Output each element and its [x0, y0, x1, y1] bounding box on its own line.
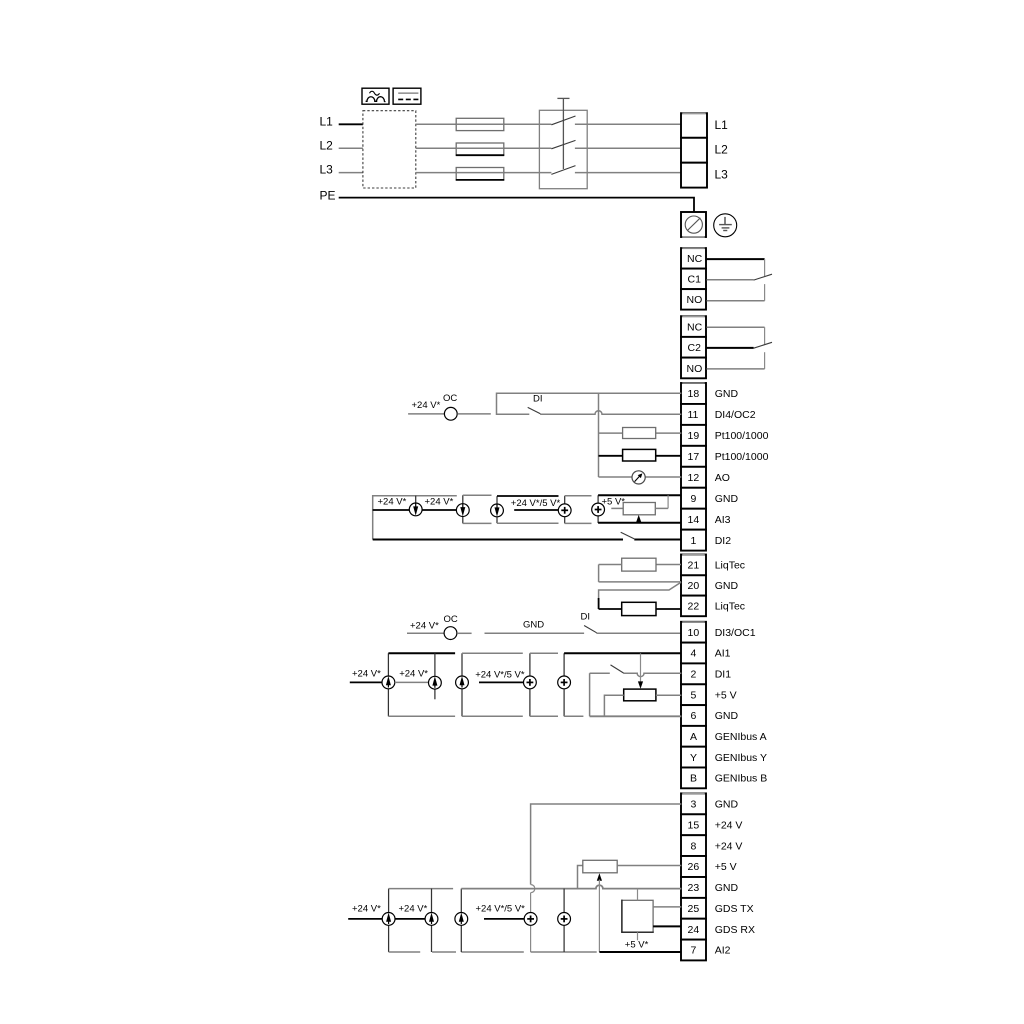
svg-text:18: 18 [688, 388, 700, 400]
svg-text:B: B [690, 773, 697, 785]
svg-text:L3: L3 [715, 167, 729, 181]
svg-text:+5 V: +5 V [715, 861, 737, 873]
svg-text:23: 23 [688, 882, 700, 894]
svg-text:21: 21 [688, 560, 700, 572]
svg-text:11: 11 [688, 409, 699, 421]
svg-text:DI4/OC2: DI4/OC2 [715, 409, 756, 421]
svg-text:+5 V: +5 V [715, 689, 737, 701]
svg-text:NO: NO [687, 363, 703, 375]
svg-text:NC: NC [687, 322, 703, 334]
svg-text:C2: C2 [688, 342, 702, 354]
svg-text:+24 V: +24 V [715, 819, 743, 831]
svg-text:A: A [690, 731, 697, 743]
svg-text:GND: GND [715, 580, 739, 592]
svg-text:+24 V*/5 V*: +24 V*/5 V* [476, 904, 526, 915]
svg-text:AI1: AI1 [715, 648, 731, 660]
svg-text:OC: OC [443, 393, 457, 404]
svg-text:L2: L2 [320, 139, 334, 153]
svg-text:+24 V*/5 V*: +24 V*/5 V* [511, 498, 561, 509]
svg-text:AI2: AI2 [715, 945, 731, 957]
svg-text:AI3: AI3 [715, 514, 731, 526]
svg-text:12: 12 [688, 472, 700, 484]
svg-text:Pt100/1000: Pt100/1000 [715, 451, 769, 463]
svg-text:DI: DI [581, 612, 591, 623]
svg-text:24: 24 [688, 924, 700, 936]
svg-text:DI: DI [533, 394, 543, 405]
svg-text:22: 22 [688, 601, 700, 613]
svg-text:17: 17 [688, 451, 700, 463]
svg-text:GENIbus Y: GENIbus Y [715, 752, 767, 764]
svg-text:DI3/OC1: DI3/OC1 [715, 627, 756, 639]
svg-text:GND: GND [715, 493, 739, 505]
svg-text:GND: GND [715, 882, 739, 894]
svg-text:L1: L1 [320, 115, 334, 129]
svg-text:+24 V*/5 V*: +24 V*/5 V* [475, 670, 525, 681]
svg-text:OC: OC [444, 614, 458, 625]
svg-text:DI2: DI2 [715, 535, 732, 547]
svg-text:GENIbus B: GENIbus B [715, 773, 768, 785]
svg-text:+24 V*: +24 V* [425, 497, 454, 508]
svg-text:+24 V*: +24 V* [410, 621, 439, 632]
svg-text:PE: PE [320, 188, 336, 202]
svg-text:DI1: DI1 [715, 669, 732, 681]
svg-text:GND: GND [715, 799, 739, 811]
svg-text:GND: GND [523, 620, 544, 631]
svg-text:20: 20 [688, 580, 700, 592]
svg-text:+24 V*: +24 V* [399, 904, 428, 915]
svg-text:+5 V*: +5 V* [602, 497, 626, 508]
svg-text:19: 19 [688, 430, 700, 442]
svg-text:+5 V*: +5 V* [625, 940, 649, 951]
svg-text:7: 7 [691, 945, 697, 957]
svg-text:Y: Y [690, 752, 697, 764]
svg-text:L1: L1 [715, 118, 729, 132]
svg-text:14: 14 [688, 514, 700, 526]
svg-text:3: 3 [691, 799, 697, 811]
svg-text:4: 4 [691, 648, 697, 660]
svg-text:26: 26 [688, 861, 700, 873]
svg-text:Pt100/1000: Pt100/1000 [715, 430, 769, 442]
svg-text:5: 5 [691, 689, 697, 701]
svg-text:25: 25 [688, 903, 700, 915]
svg-text:GND: GND [715, 388, 739, 400]
svg-text:+24 V*: +24 V* [399, 669, 428, 680]
svg-text:L2: L2 [715, 143, 729, 157]
svg-text:GDS RX: GDS RX [715, 924, 755, 936]
svg-text:6: 6 [691, 710, 697, 722]
svg-text:GENIbus A: GENIbus A [715, 731, 767, 743]
svg-text:15: 15 [688, 819, 700, 831]
svg-text:+24 V*: +24 V* [352, 904, 381, 915]
svg-text:LiqTec: LiqTec [715, 601, 745, 613]
svg-text:+24 V*: +24 V* [378, 497, 407, 508]
svg-text:C1: C1 [688, 274, 702, 286]
svg-text:+24 V*: +24 V* [412, 400, 441, 411]
svg-text:NO: NO [687, 294, 703, 306]
svg-text:GND: GND [715, 710, 739, 722]
svg-text:8: 8 [691, 840, 697, 852]
svg-text:9: 9 [691, 493, 697, 505]
svg-text:10: 10 [688, 627, 700, 639]
svg-text:AO: AO [715, 472, 730, 484]
svg-text:LiqTec: LiqTec [715, 560, 745, 572]
svg-text:L3: L3 [320, 163, 334, 177]
svg-text:1: 1 [691, 535, 697, 547]
svg-text:2: 2 [691, 669, 697, 681]
svg-text:NC: NC [687, 253, 703, 265]
svg-text:+24 V: +24 V [715, 840, 743, 852]
svg-text:+24 V*: +24 V* [352, 669, 381, 680]
svg-text:GDS TX: GDS TX [715, 903, 754, 915]
